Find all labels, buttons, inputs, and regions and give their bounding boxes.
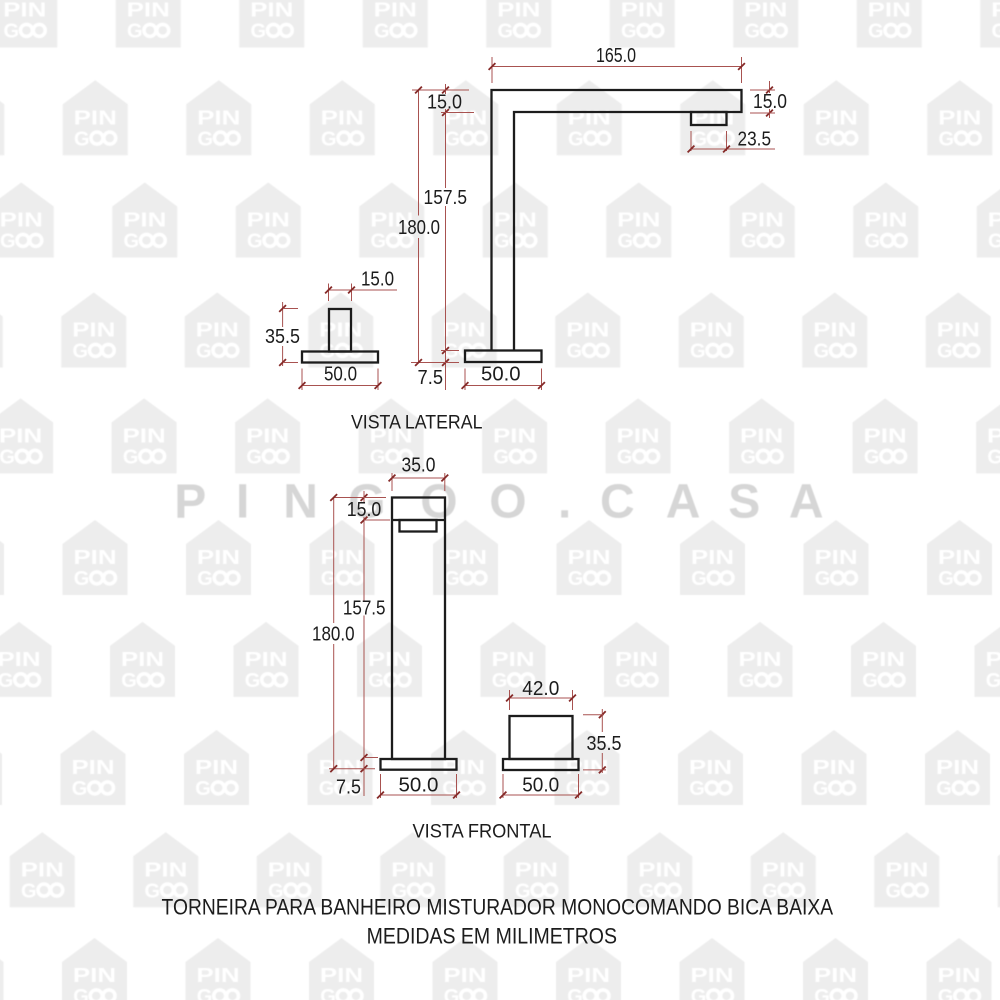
svg-text:35.5: 35.5 [587,733,622,755]
svg-text:50.0: 50.0 [324,364,357,386]
svg-text:157.5: 157.5 [424,187,468,209]
svg-text:180.0: 180.0 [398,217,440,239]
svg-text:VISTA LATERAL: VISTA LATERAL [351,413,483,434]
svg-text:157.5: 157.5 [343,598,386,620]
svg-text:15.0: 15.0 [347,499,382,521]
svg-text:35.5: 35.5 [265,326,300,348]
svg-text:15.0: 15.0 [361,269,394,291]
svg-text:15.0: 15.0 [427,92,462,114]
svg-text:VISTA FRONTAL: VISTA FRONTAL [413,822,552,843]
svg-text:MEDIDAS EM MILIMETROS: MEDIDAS EM MILIMETROS [367,924,617,949]
svg-text:7.5: 7.5 [336,777,361,799]
svg-text:50.0: 50.0 [522,775,559,797]
svg-text:180.0: 180.0 [312,624,355,646]
svg-text:50.0: 50.0 [481,364,521,386]
svg-text:23.5: 23.5 [738,129,772,151]
svg-text:TORNEIRA PARA BANHEIRO MISTURA: TORNEIRA PARA BANHEIRO MISTURADOR MONOCO… [162,895,834,920]
svg-text:7.5: 7.5 [418,367,444,389]
svg-text:35.0: 35.0 [402,455,436,477]
svg-text:165.0: 165.0 [596,45,636,67]
svg-text:42.0: 42.0 [522,678,559,700]
svg-text:50.0: 50.0 [399,775,439,797]
svg-text:15.0: 15.0 [753,91,787,113]
